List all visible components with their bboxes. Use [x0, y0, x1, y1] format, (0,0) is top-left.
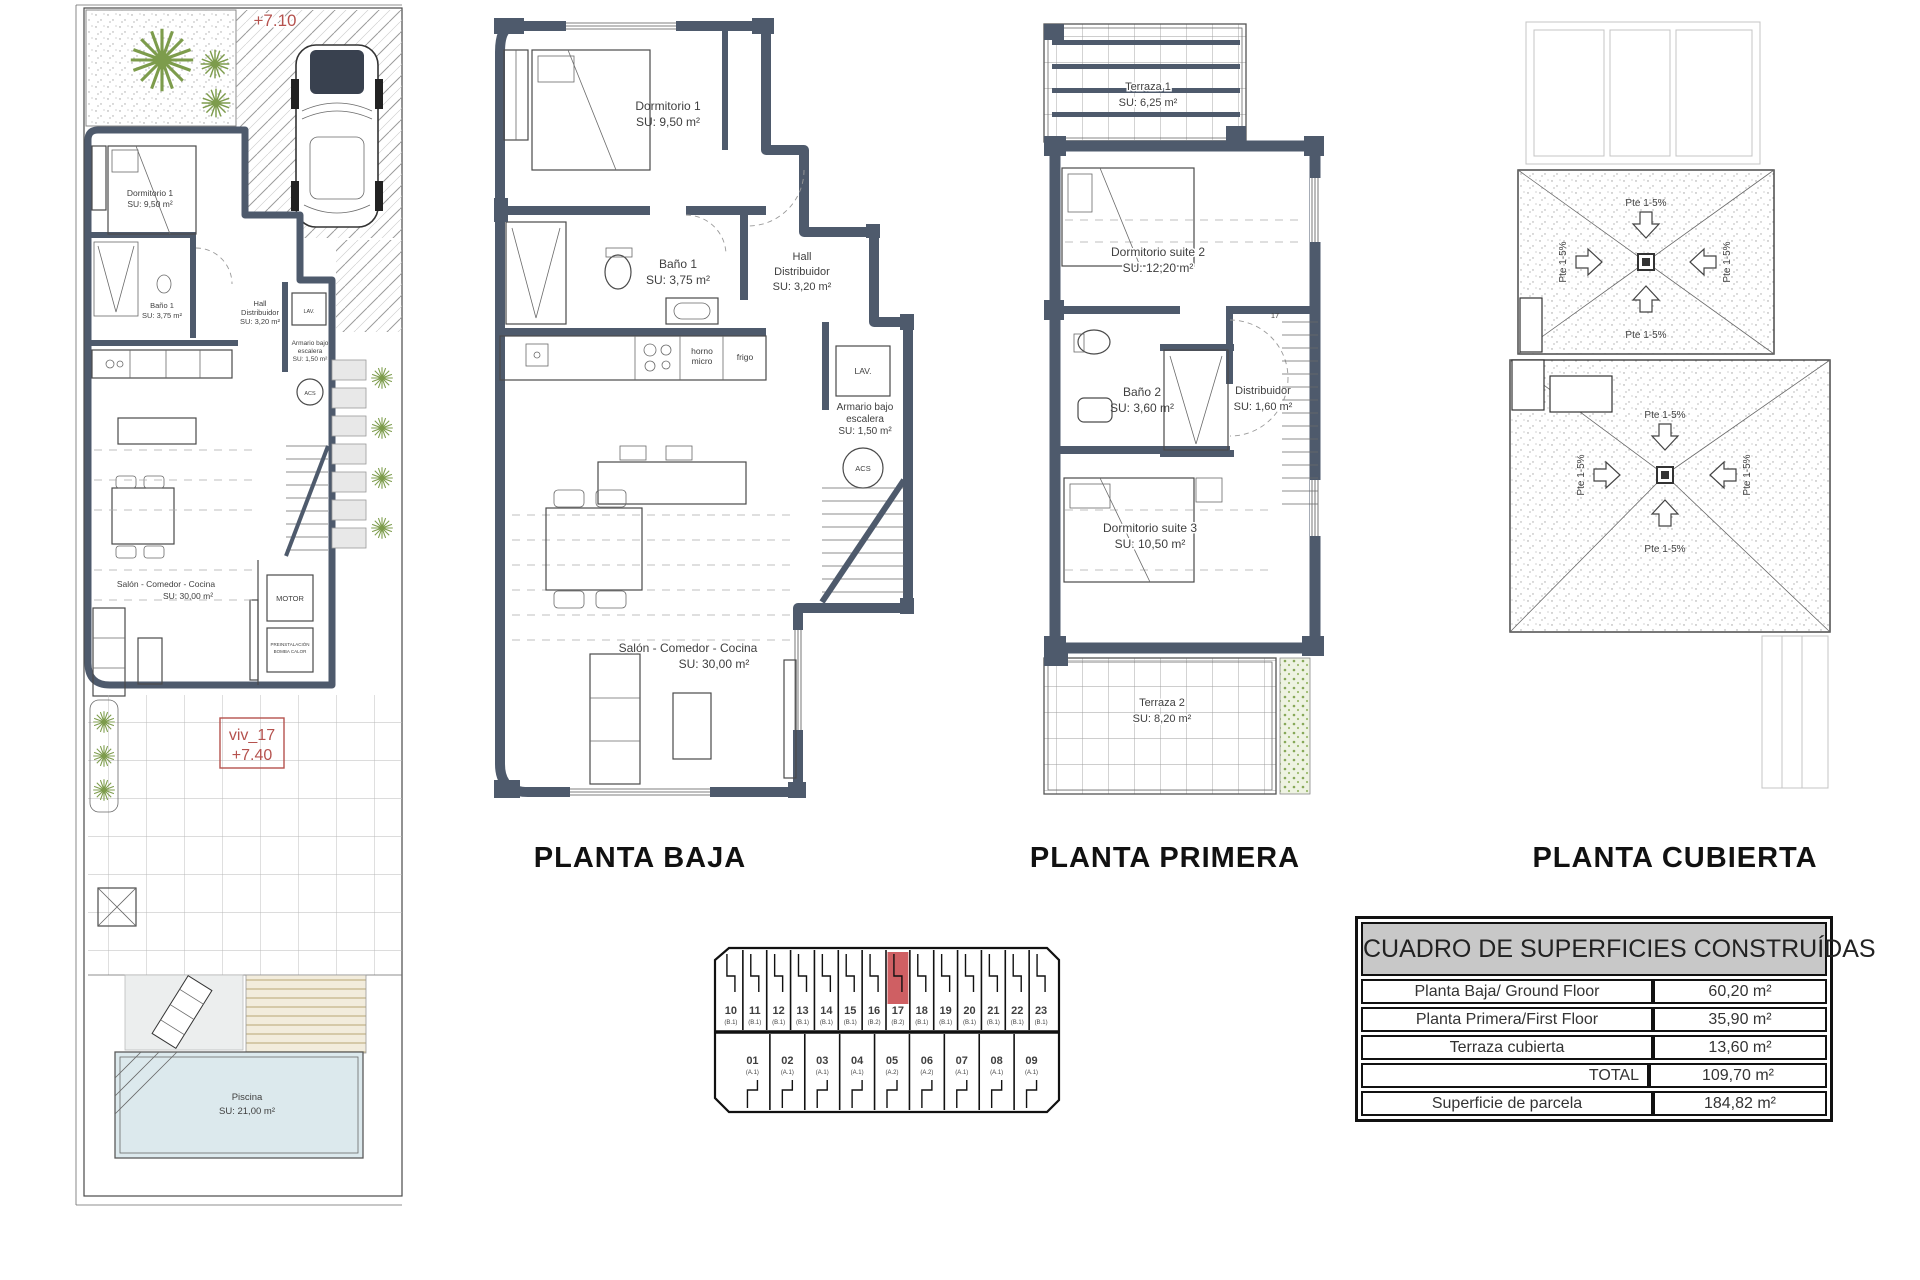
lav-label: LAV. [854, 366, 871, 376]
plan-sheet: +7.10 Dormitorio 1 SU: 9,50 m² Baño 1 SU… [0, 0, 1920, 1280]
keyplan-unit-type: (A.1) [816, 1070, 829, 1076]
surfaces-table: CUADRO DE SUPERFICIES CONSTRUÍDAS Planta… [1355, 916, 1833, 1122]
unit-id-label: viv_17 [229, 727, 275, 744]
surfaces-table-body: Planta Baja/ Ground Floor 60,20 m² Plant… [1361, 979, 1827, 1116]
room-label: Armario bajo [837, 402, 894, 413]
room-label: Dormitorio 1 [635, 99, 701, 113]
keyplan-unit-type: (B.2) [891, 1020, 904, 1026]
keyplan-unit-number: 15 [844, 1005, 856, 1017]
room-area-label: SU: 30,00 m² [679, 657, 750, 671]
side-path-stones [332, 360, 393, 548]
room-area-label: SU: 3,60 m² [1110, 401, 1174, 415]
room-area-label: SU: 21,00 m² [219, 1106, 275, 1117]
ghost-floor-outline [1526, 22, 1760, 164]
room-label: Distribuidor [774, 266, 830, 278]
keyplan-unit-number: 07 [956, 1055, 968, 1067]
surfaces-table-row: Planta Baja/ Ground Floor 60,20 m² [1361, 979, 1827, 1004]
pool [115, 1052, 363, 1158]
ghost-lower-outline [1762, 636, 1828, 788]
keyplan-unit-type: (A.1) [851, 1070, 864, 1076]
keyplan-unit-type: (A.2) [920, 1070, 933, 1076]
keyplan-unit-type: (B.1) [772, 1020, 785, 1026]
keyplan-unit-number: 22 [1011, 1005, 1023, 1017]
slope-label: Pte 1-5% [1625, 198, 1666, 209]
keyplan-unit-type: (A.2) [885, 1070, 898, 1076]
keyplan-unit-type: (B.1) [939, 1020, 952, 1026]
keyplan-panel: 10(B.1)11(B.1)12(B.1)13(B.1)14(B.1)15(B.… [713, 946, 1061, 1116]
planta-cubierta-panel: Pte 1-5% Pte 1-5% Pte 1-5% Pte 1-5% Pte … [1490, 10, 1860, 810]
room-area-label: SU: 9,50 m² [127, 199, 173, 209]
preinstalacion-label: BOMBA CALOR [274, 649, 308, 654]
keyplan-unit-number: 18 [916, 1005, 928, 1017]
surface-row-label: Terraza cubierta [1363, 1037, 1655, 1058]
keyplan-unit-number: 19 [940, 1005, 952, 1017]
surfaces-table-row: Superficie de parcela 184,82 m² [1361, 1091, 1827, 1116]
room-label: escalera [846, 414, 884, 425]
slope-label: Pte 1-5% [1558, 241, 1569, 282]
room-area-label: SU: 9,50 m² [636, 115, 700, 129]
room-label: Baño 2 [1123, 385, 1161, 399]
unit-level-label: +7.40 [232, 747, 273, 764]
surface-row-label: Planta Baja/ Ground Floor [1363, 981, 1655, 1002]
keyplan-unit-type: (A.1) [990, 1070, 1003, 1076]
preinstalacion-label: PREINSTALACIÓN [271, 641, 310, 647]
keyplan-unit-number: 10 [725, 1005, 737, 1017]
slope-label: Pte 1-5% [1576, 454, 1587, 495]
room-area-label: SU: 3,75 m² [646, 273, 710, 287]
keyplan-unit-number: 17 [892, 1005, 904, 1017]
planta-cubierta-title: PLANTA CUBIERTA [1490, 842, 1860, 875]
stair-reference-label: 17 [1271, 311, 1279, 320]
keyplan-unit-type: (B.1) [844, 1020, 857, 1026]
keyplan-unit-type: (A.1) [781, 1070, 794, 1076]
room-label: Distribuidor [241, 308, 279, 317]
keyplan-unit-number: 14 [820, 1005, 833, 1017]
keyplan-unit-type: (B.1) [963, 1020, 976, 1026]
keyplan-unit-number: 01 [746, 1055, 758, 1067]
slope-label: Pte 1-5% [1742, 454, 1753, 495]
room-label: Hall [793, 251, 812, 263]
slope-label: Pte 1-5% [1722, 241, 1733, 282]
room-label: escalera [298, 348, 323, 355]
site-level-label: +7.10 [253, 11, 296, 30]
room-area-label: SU: 12,20 m² [1123, 261, 1194, 275]
keyplan-unit-number: 21 [987, 1005, 999, 1017]
keyplan-unit-number: 20 [963, 1005, 975, 1017]
horno-label: micro [692, 356, 713, 366]
walls-outline [1055, 146, 1315, 648]
garden-area [86, 10, 236, 126]
surface-row-value: 13,60 m² [1655, 1037, 1825, 1058]
planta-baja-panel: Dormitorio 1 SU: 9,50 m² Baño 1 SU: 3,75… [470, 10, 920, 810]
surfaces-table-row: Terraza cubierta 13,60 m² [1361, 1035, 1827, 1060]
room-label: Salón - Comedor - Cocina [619, 641, 758, 655]
room-label: Dormitorio suite 2 [1111, 245, 1205, 259]
keyplan-unit-number: 05 [886, 1055, 898, 1067]
car-icon [291, 45, 383, 227]
keyplan-unit-type: (B.1) [796, 1020, 809, 1026]
room-area-label: SU: 3,75 m² [142, 311, 183, 320]
keyplan-unit-number: 11 [749, 1005, 761, 1017]
horno-label: horno [691, 346, 713, 356]
deck-area [125, 975, 366, 1053]
keyplan-unit-type: (A.1) [955, 1070, 968, 1076]
keyplan-unit-type: (B.1) [748, 1020, 761, 1026]
surface-row-value: 60,20 m² [1655, 981, 1825, 1002]
surfaces-table-row: Planta Primera/First Floor 35,90 m² [1361, 1007, 1827, 1032]
room-label: Terraza 2 [1139, 697, 1185, 709]
planta-primera-panel: Terraza 1 SU: 6,25 m² Dormitorio suite 2… [1030, 10, 1340, 810]
surface-row-value: 109,70 m² [1651, 1065, 1825, 1086]
room-area-label: SU: 30,00 m² [163, 591, 213, 601]
room-label: Armario bajo [292, 340, 329, 347]
keyplan-unit-number: 09 [1025, 1055, 1037, 1067]
planta-primera-title: PLANTA PRIMERA [1010, 842, 1320, 875]
room-label: Terraza 1 [1125, 81, 1171, 93]
room-area-label: SU: 3,20 m² [773, 281, 832, 293]
keyplan-unit-number: 08 [991, 1055, 1003, 1067]
room-label: Baño 1 [659, 257, 697, 271]
room-label: Dormitorio 1 [127, 188, 174, 198]
surface-row-value: 35,90 m² [1655, 1009, 1825, 1030]
room-area-label: SU: 8,20 m² [1133, 713, 1192, 725]
room-label: Piscina [232, 1092, 263, 1103]
slope-label: Pte 1-5% [1644, 544, 1685, 555]
keyplan-unit-type: (B.1) [1035, 1020, 1048, 1026]
keyplan-unit-number: 03 [816, 1055, 828, 1067]
room-label: Salón - Comedor - Cocina [117, 579, 216, 589]
keyplan-unit-type: (B.1) [1011, 1020, 1024, 1026]
acs-label: ACS [855, 464, 870, 473]
room-label: Hall [254, 299, 267, 308]
surfaces-table-row: TOTAL 109,70 m² [1361, 1063, 1827, 1088]
keyplan-unit-number: 13 [796, 1005, 808, 1017]
surface-row-label: Planta Primera/First Floor [1363, 1009, 1655, 1030]
lav-label: LAV. [303, 309, 314, 315]
keyplan-unit-number: 04 [851, 1055, 864, 1067]
surface-row-value: 184,82 m² [1655, 1093, 1825, 1114]
keyplan-unit-type: (B.2) [868, 1020, 881, 1026]
keyplan-unit-type: (B.1) [915, 1020, 928, 1026]
keyplan-unit-type: (B.1) [820, 1020, 833, 1026]
motor-label: MOTOR [276, 594, 304, 603]
room-area-label: SU: 1,50 m² [293, 356, 329, 363]
room-label: Dormitorio suite 3 [1103, 521, 1197, 535]
keyplan-unit-number: 12 [773, 1005, 785, 1017]
room-label: Baño 1 [150, 301, 174, 310]
slope-label: Pte 1-5% [1644, 410, 1685, 421]
frigo-label: frigo [737, 352, 754, 362]
keyplan-unit-type: (A.1) [1025, 1070, 1038, 1076]
room-area-label: SU: 3,20 m² [240, 317, 281, 326]
acs-label: ACS [304, 391, 316, 397]
room-area-label: SU: 1,60 m² [1234, 401, 1293, 413]
keyplan-unit-type: (B.1) [724, 1020, 737, 1026]
surfaces-table-title: CUADRO DE SUPERFICIES CONSTRUÍDAS [1361, 922, 1827, 976]
keyplan-unit-highlight [888, 952, 909, 1004]
room-area-label: SU: 1,50 m² [838, 426, 892, 437]
slope-label: Pte 1-5% [1625, 330, 1666, 341]
planta-baja-title: PLANTA BAJA [470, 842, 810, 875]
keyplan-unit-number: 02 [781, 1055, 793, 1067]
keyplan-unit-number: 06 [921, 1055, 933, 1067]
keyplan-unit-number: 16 [868, 1005, 880, 1017]
keyplan-unit-type: (B.1) [987, 1020, 1000, 1026]
site-plan-panel: +7.10 Dormitorio 1 SU: 9,50 m² Baño 1 SU… [70, 0, 410, 1215]
surface-row-label: Superficie de parcela [1363, 1093, 1655, 1114]
room-area-label: SU: 10,50 m² [1115, 537, 1186, 551]
surface-row-label: TOTAL [1363, 1065, 1651, 1086]
room-area-label: SU: 6,25 m² [1119, 97, 1178, 109]
keyplan-unit-number: 23 [1035, 1005, 1047, 1017]
keyplan-unit-type: (A.1) [746, 1070, 759, 1076]
